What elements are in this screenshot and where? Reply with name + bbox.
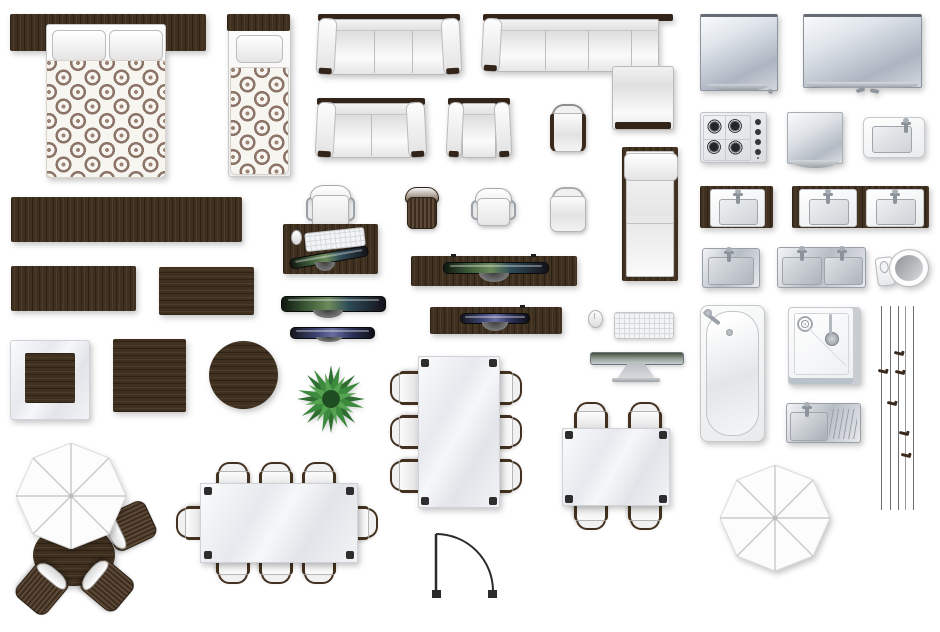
drainboard (829, 409, 857, 439)
computer-keyboard[interactable] (614, 312, 674, 339)
sofa-arm (315, 102, 337, 159)
basin-surround (799, 189, 857, 227)
tv-foot (482, 322, 508, 331)
dining-table (562, 428, 670, 506)
arm-cap (446, 68, 459, 75)
gas-cooktop[interactable] (700, 112, 767, 163)
single-bed[interactable] (227, 14, 290, 175)
sink-drainboard[interactable] (786, 403, 861, 443)
sofa-arm (494, 102, 513, 159)
parasol-canopy (16, 443, 126, 549)
table-foot (204, 551, 212, 559)
shower-head[interactable] (825, 332, 839, 346)
sofa-3seat[interactable] (318, 14, 460, 75)
office-chair-white[interactable] (472, 188, 515, 226)
arm-cap (499, 151, 509, 158)
burner (728, 119, 742, 133)
curtain-hook (878, 369, 888, 374)
sofa-seat (332, 19, 446, 75)
arm-cap (319, 68, 332, 75)
door-jamb (432, 590, 441, 598)
sink-basin (824, 257, 863, 285)
monitor-foot (315, 262, 335, 271)
plant-leaves (297, 365, 365, 433)
curtain-hook (899, 431, 909, 436)
office-chair-rattan[interactable] (402, 187, 442, 229)
sideboard-medium[interactable] (11, 266, 136, 311)
track-line (905, 306, 906, 510)
tv-foot (313, 310, 343, 318)
sideboard-long[interactable] (11, 197, 242, 242)
burner (707, 140, 721, 154)
toilet[interactable] (874, 247, 929, 290)
media-console-small[interactable] (430, 307, 562, 334)
tv-panel-blue[interactable] (290, 327, 373, 342)
faucet[interactable] (826, 193, 830, 204)
chair-seat (407, 197, 437, 229)
sofa-arm (441, 18, 463, 76)
chair-seat (312, 195, 349, 227)
sofa-arm (481, 18, 503, 73)
faucet[interactable] (736, 193, 740, 204)
cushion-line (464, 114, 494, 115)
sofa-arm (316, 18, 338, 76)
duvet (46, 60, 166, 178)
duvet (230, 67, 289, 175)
computer-mouse[interactable] (588, 310, 603, 328)
table-foot (489, 359, 497, 367)
dining-set-4[interactable] (555, 400, 675, 535)
steel-sink-single[interactable] (702, 248, 760, 288)
chair-seat (550, 196, 586, 232)
control-knob[interactable] (755, 119, 761, 125)
track-line (890, 306, 891, 510)
arm-cap (484, 65, 497, 72)
table-foot (346, 551, 354, 559)
sideboard-small[interactable] (159, 267, 254, 315)
vanity-double[interactable] (792, 186, 929, 228)
basin-surround (866, 189, 924, 227)
cushion-divider (412, 30, 413, 73)
door-jamb (488, 590, 497, 598)
side-table-square[interactable] (113, 339, 186, 412)
bowl-inner (894, 253, 925, 282)
curtain-tracks[interactable] (881, 306, 917, 510)
faucet[interactable] (840, 250, 844, 261)
dining-table (200, 483, 358, 563)
control-knob[interactable] (755, 129, 761, 135)
pillow (109, 30, 163, 61)
pillow (52, 30, 106, 61)
side-table-round[interactable] (209, 341, 278, 409)
dining-set-8[interactable] (177, 460, 377, 586)
chaise-extension (612, 66, 674, 130)
bathtub[interactable] (700, 305, 765, 442)
cushion-line (627, 223, 673, 224)
door-arc (436, 534, 493, 591)
double-bed[interactable] (10, 14, 206, 176)
cushion-line (499, 30, 657, 31)
cushion-line (334, 30, 444, 31)
coffee-table-glass[interactable] (10, 340, 90, 420)
drain (726, 329, 733, 336)
faucet[interactable] (800, 250, 804, 261)
potted-plant[interactable] (297, 365, 365, 433)
curtain-hook (894, 351, 904, 356)
curtain-hook (887, 401, 897, 406)
tv-foot (479, 273, 509, 282)
chair-seat (477, 198, 510, 226)
sofa-2seat[interactable] (317, 98, 425, 158)
faucet[interactable] (893, 193, 897, 204)
mirror[interactable] (787, 112, 843, 164)
chair-white[interactable] (548, 187, 588, 232)
door-swing-symbol[interactable] (430, 528, 498, 600)
tv-base (707, 84, 771, 91)
vanity-single[interactable] (700, 186, 773, 228)
chair-seat (550, 113, 586, 152)
desk-set[interactable] (283, 185, 383, 275)
armchair[interactable] (448, 98, 510, 158)
sofa-seat (462, 103, 496, 158)
monitor-stand (617, 363, 655, 379)
burner (727, 139, 744, 156)
mouse-split (594, 313, 595, 319)
dining-set-6[interactable] (390, 355, 525, 510)
sofa-arm (406, 102, 428, 159)
cushion-divider (588, 30, 589, 70)
cushion-divider (631, 30, 632, 70)
table-foot (421, 359, 429, 367)
furniture-sprite-sheet (0, 0, 940, 632)
tv-foot (316, 337, 342, 342)
track-line (898, 306, 899, 510)
lounge-pillow (624, 153, 678, 181)
desk-chair[interactable] (307, 185, 354, 227)
faucet-head (704, 309, 712, 317)
table-foot (489, 497, 497, 505)
knob (451, 254, 456, 257)
curtain-hook (895, 370, 905, 375)
table-foot (565, 431, 573, 439)
headboard (227, 14, 290, 31)
wood-inset (25, 353, 75, 403)
control-knob[interactable] (755, 149, 761, 155)
tv-medium[interactable] (700, 14, 778, 91)
monitor-base (612, 378, 660, 382)
arm-cap (411, 151, 424, 158)
burner (706, 118, 723, 135)
tv-wide[interactable] (803, 14, 922, 88)
cushion-divider (371, 114, 372, 156)
curtain-hook (901, 453, 911, 458)
chaise-cap (615, 122, 671, 129)
shower-tray[interactable] (788, 307, 861, 385)
faucet[interactable] (805, 406, 809, 417)
sink-basin (708, 257, 754, 285)
sink-basin (790, 412, 828, 441)
table-foot (204, 487, 212, 495)
faucet[interactable] (727, 251, 731, 262)
chaise-lounge[interactable] (622, 147, 678, 281)
chair-dark-arms[interactable] (548, 104, 588, 152)
mirror-base (790, 160, 840, 168)
track-line (881, 306, 882, 510)
cushion-divider (374, 30, 375, 73)
tv-panel-green[interactable] (281, 296, 384, 318)
tv-foot (768, 89, 773, 94)
table-foot (346, 487, 354, 495)
media-console-large[interactable] (411, 256, 577, 286)
knob (520, 305, 525, 308)
cushion-divider (545, 30, 546, 70)
table-foot (659, 431, 667, 439)
table-foot (659, 495, 667, 503)
table-foot (421, 497, 429, 505)
shower-arm (829, 314, 832, 334)
sink-basin (782, 257, 822, 285)
sofa-arm (446, 102, 465, 159)
parasol-table-set[interactable] (10, 440, 160, 620)
parasol[interactable] (720, 465, 830, 571)
table-foot (565, 495, 573, 503)
faucet[interactable] (904, 122, 908, 133)
control-knob[interactable] (755, 139, 761, 145)
parasol-pole (773, 516, 778, 521)
desk (283, 224, 378, 274)
track-line (913, 306, 914, 510)
kitchen-sink[interactable] (863, 117, 925, 158)
arm-cap (449, 151, 459, 158)
knob (531, 254, 536, 257)
sofa-seat (497, 19, 659, 72)
steel-sink-double[interactable] (777, 247, 866, 288)
arm-cap (318, 151, 331, 158)
monitor-top-view[interactable] (590, 350, 682, 382)
pillow (236, 35, 283, 63)
mouse[interactable] (291, 230, 302, 245)
basin-surround (710, 189, 765, 227)
tv-foot (870, 88, 880, 94)
indicator-dot (757, 157, 759, 159)
dining-table (418, 356, 500, 508)
flush-button[interactable] (879, 261, 889, 274)
